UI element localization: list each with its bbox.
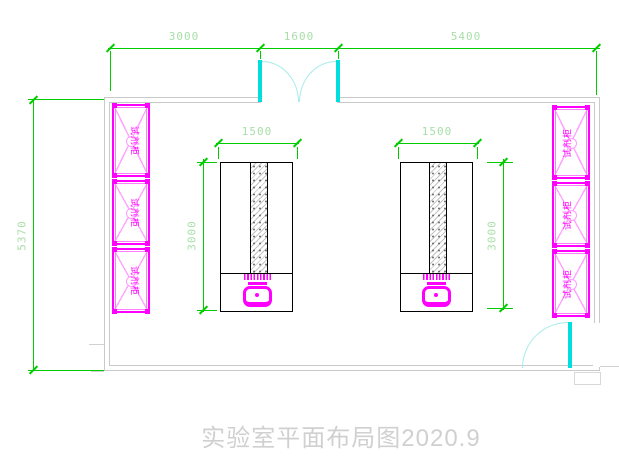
wall-tick-left — [89, 344, 104, 345]
reagent-cabinet: 试剂柜 — [552, 182, 590, 247]
corner-block — [585, 175, 590, 180]
floor-plan: 3000 1600 5400 5370 1500 3000 1500 3000 — [0, 0, 619, 469]
witness-line — [197, 162, 217, 163]
sink-drain-icon — [434, 293, 438, 297]
top-door-left-swing-arc — [262, 61, 299, 102]
corner-block — [585, 181, 590, 186]
dimension-label-top-3: 5400 — [430, 30, 502, 43]
bench-hatch-strip — [250, 163, 268, 274]
wall-extension-left — [91, 371, 104, 372]
corner-block — [145, 103, 150, 108]
witness-line — [110, 51, 111, 91]
witness-line — [487, 162, 513, 163]
dimension-label-top-1: 3000 — [148, 30, 220, 43]
corner-block — [552, 181, 557, 186]
reagent-cabinet: 试剂柜 — [112, 180, 150, 245]
reagent-cabinet: 试剂柜 — [552, 106, 590, 179]
witness-line — [338, 51, 339, 59]
witness-line — [596, 51, 597, 95]
corner-block — [112, 103, 117, 108]
left-dimension-line — [33, 99, 34, 371]
corner-block — [145, 173, 150, 178]
lab-bench-left — [220, 162, 293, 312]
witness-line — [28, 370, 104, 371]
bench-right-width-dim-line — [396, 143, 479, 144]
witness-line — [297, 147, 298, 159]
corner-block — [145, 247, 150, 252]
bench-left-depth-label: 3000 — [186, 201, 199, 271]
reagent-cabinet: 试剂柜 — [112, 248, 150, 313]
bench-right-depth-label: 3000 — [486, 201, 499, 271]
corner-block — [145, 241, 150, 246]
cabinet-label: 试剂柜 — [129, 265, 142, 295]
top-door-right-leaf — [336, 60, 340, 102]
witness-line — [260, 51, 261, 59]
corner-block — [552, 243, 557, 248]
sink-faucet-icon — [248, 282, 267, 285]
corner-block — [552, 105, 557, 110]
wall-extension-right — [600, 366, 619, 367]
corner-block — [585, 313, 590, 318]
side-door-leaf — [568, 322, 572, 368]
corner-block — [552, 249, 557, 254]
lab-bench-right — [400, 162, 473, 312]
bench-hatch-strip — [429, 163, 447, 274]
room-inner-wall — [109, 102, 595, 366]
side-door-opening — [593, 323, 602, 367]
top-door-right-swing-arc — [299, 61, 336, 102]
cabinet-label: 试剂柜 — [560, 127, 573, 157]
corner-block — [585, 249, 590, 254]
bench-right-width-label: 1500 — [401, 125, 473, 138]
cabinet-label: 试剂柜 — [560, 268, 573, 298]
witness-line — [28, 99, 104, 100]
corner-block — [585, 105, 590, 110]
corner-block — [112, 247, 117, 252]
corner-block — [552, 175, 557, 180]
corner-block — [585, 243, 590, 248]
witness-line — [487, 308, 513, 309]
reagent-cabinet: 试剂柜 — [552, 250, 590, 317]
corner-block — [145, 179, 150, 184]
sink-drain-icon — [255, 293, 259, 297]
corner-block — [112, 173, 117, 178]
bench-left-depth-dim-line — [203, 159, 204, 312]
plan-title: 实验室平面布局图2020.9 — [201, 418, 480, 453]
witness-line — [197, 310, 217, 311]
witness-line — [477, 147, 478, 159]
cabinet-label: 试剂柜 — [129, 125, 142, 155]
reagent-cabinet: 试剂柜 — [112, 104, 150, 177]
cabinet-label: 试剂柜 — [129, 197, 142, 227]
sink-sprayer-icon — [244, 274, 271, 280]
corner-block — [112, 179, 117, 184]
wall-stub — [574, 372, 601, 385]
bench-left-width-label: 1500 — [221, 125, 293, 138]
sink-sprayer-icon — [423, 274, 450, 280]
corner-block — [552, 313, 557, 318]
witness-line — [398, 147, 399, 159]
top-dimension-line — [108, 48, 600, 49]
corner-block — [145, 309, 150, 314]
bench-left-width-dim-line — [216, 143, 299, 144]
witness-line — [218, 147, 219, 159]
dimension-label-top-2: 1600 — [263, 30, 335, 43]
cabinet-label: 试剂柜 — [560, 199, 573, 229]
dimension-label-left: 5370 — [16, 201, 29, 271]
corner-block — [112, 309, 117, 314]
bench-right-depth-dim-line — [503, 159, 504, 310]
sink-faucet-icon — [427, 282, 446, 285]
corner-block — [112, 241, 117, 246]
